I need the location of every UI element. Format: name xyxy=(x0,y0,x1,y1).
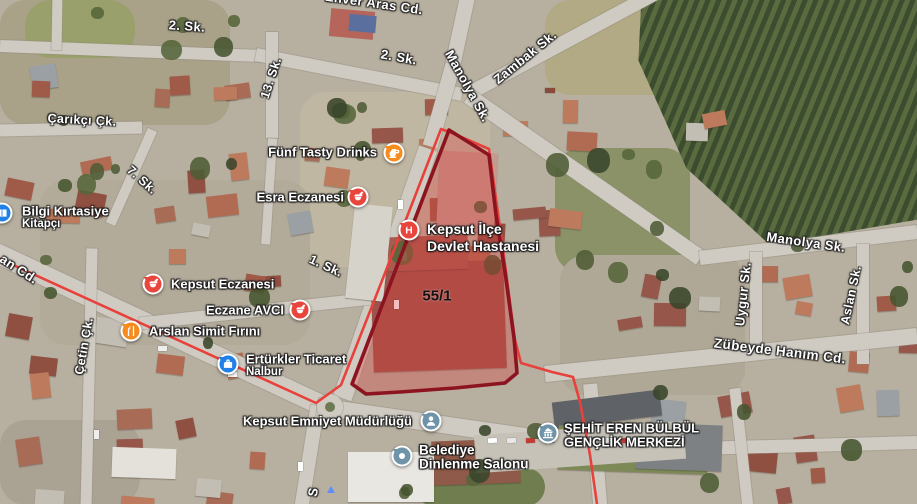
poi-marker-kepsut-emniyet-mudurlugu[interactable] xyxy=(421,411,442,432)
poi-label[interactable]: Kepsut Emniyet Müdürlüğü xyxy=(243,414,412,429)
poi-marker-arslan-simit-firini[interactable] xyxy=(121,321,142,342)
poi-marker-sehit-eren-bulbul-genclik-merkezi[interactable] xyxy=(538,423,559,444)
police-icon xyxy=(425,415,438,428)
poi-label[interactable]: GENÇLİK MERKEZİ xyxy=(564,435,685,450)
cafe-icon xyxy=(388,147,401,160)
poi-marker-erturkler-ticaret[interactable] xyxy=(218,354,239,375)
poi-marker-esra-eczanesi[interactable] xyxy=(348,187,369,208)
svg-text:H: H xyxy=(405,226,412,237)
restaurant-icon xyxy=(125,325,138,338)
poi-label[interactable]: Devlet Hastanesi xyxy=(427,238,539,254)
shopping-icon xyxy=(222,358,235,371)
poi-label[interactable]: Belediye xyxy=(419,443,475,458)
poi-marker-kepsut-ilce-devlet-hastanesi[interactable]: H xyxy=(399,220,420,241)
poi-label[interactable]: Esra Eczanesi xyxy=(257,190,344,205)
poi-label[interactable]: Kepsut Eczanesi xyxy=(171,277,274,292)
poi-label[interactable]: Bilgi Kırtasiye xyxy=(22,204,109,219)
poi-label[interactable]: Kitapçı xyxy=(22,218,60,230)
pharmacy-icon xyxy=(352,191,365,204)
poi-label[interactable]: Kepsut İlçe xyxy=(427,221,502,237)
poi-label[interactable]: ŞEHİT EREN BÜLBÜL xyxy=(564,421,699,436)
bank-icon xyxy=(542,427,555,440)
poi-label[interactable]: Dinlenme Salonu xyxy=(419,457,529,472)
parcel-number-label: 55/1 xyxy=(422,288,451,305)
poi-marker-kepsut-eczanesi[interactable] xyxy=(143,274,164,295)
poi-label[interactable]: Ertürkler Ticaret xyxy=(246,352,346,367)
poi-label[interactable]: Nalbur xyxy=(246,366,282,378)
hospital-icon: H xyxy=(403,224,416,237)
dot-icon xyxy=(396,450,409,463)
poi-label[interactable]: Eczane AVCI xyxy=(206,303,284,318)
poi-marker-eczane-avci[interactable] xyxy=(290,300,311,321)
street-label: 2. Sk. xyxy=(168,17,205,35)
pharmacy-icon xyxy=(147,278,160,291)
book-icon xyxy=(0,207,9,220)
one-way-arrow-icon xyxy=(327,482,335,493)
poi-marker-belediye-dinlenme-salonu[interactable] xyxy=(392,446,413,467)
poi-label[interactable]: Arslan Simit Fırını xyxy=(149,324,260,339)
parcel-outline[interactable] xyxy=(352,130,517,394)
pharmacy-icon xyxy=(294,304,307,317)
satellite-map[interactable]: 55/1 Enver Aras Cd.2. Sk.2. Sk.Manolya S… xyxy=(0,0,917,504)
poi-label[interactable]: Fünf Tasty Drinks xyxy=(268,145,377,160)
poi-marker-funf-tasty-drinks[interactable] xyxy=(384,143,405,164)
